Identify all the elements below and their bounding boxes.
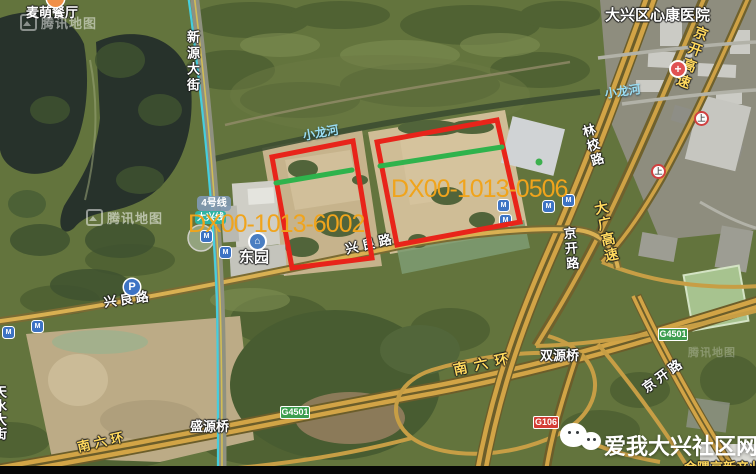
g106-badge: G106 xyxy=(533,416,559,429)
metro-logo-icon[interactable]: M xyxy=(500,215,511,226)
map-viewport[interactable]: 麦萌餐厅 大兴区心康医院 + 新源大街 京开高速 林校路 大广高速 京开路 京开… xyxy=(0,0,756,474)
highway-entrance-icon: 上 xyxy=(694,111,709,126)
metro-line4-badge[interactable]: 4号线 xyxy=(197,196,231,211)
hospital-cross-icon: + xyxy=(671,62,685,76)
poi-label-hospital[interactable]: 大兴区心康医院 xyxy=(605,8,710,23)
bottom-black-bar xyxy=(0,466,756,474)
bridge-label-shuangyuan: 双源桥 xyxy=(540,349,579,362)
tencent-map-watermark: 腾讯地图 xyxy=(86,208,163,227)
parcel-id-label-6002: DX00-1013-6002 xyxy=(188,212,364,237)
wechat-icon xyxy=(560,423,606,457)
metro-logo-icon[interactable]: M xyxy=(3,327,14,338)
image-icon xyxy=(20,14,37,31)
metro-logo-icon[interactable]: M xyxy=(220,247,231,258)
station-label-dongyuan[interactable]: 东园 xyxy=(239,250,269,265)
parcel-id-label-0506: DX00-1013-0506 xyxy=(391,177,567,202)
g4501-badge-west: G4501 xyxy=(280,406,310,419)
road-label-jingkai-road-upper: 京开路 xyxy=(562,226,579,272)
road-label-xinyuan-dajie: 新源大街 xyxy=(186,30,199,94)
image-icon xyxy=(86,209,103,226)
road-label-tianshui-dajie: 天水大街 xyxy=(0,385,6,441)
highway-entrance-icon: 上 xyxy=(651,164,666,179)
bridge-label-shengyuan: 盛源桥 xyxy=(190,420,229,433)
parking-icon[interactable]: P xyxy=(124,279,140,295)
tencent-map-watermark: 腾讯地图 xyxy=(688,344,736,360)
hospital-icon[interactable]: + xyxy=(669,60,687,78)
metro-logo-icon[interactable]: M xyxy=(32,321,43,332)
tencent-map-watermark: 腾讯地图 xyxy=(20,13,97,32)
g4501-badge-east: G4501 xyxy=(658,328,688,341)
